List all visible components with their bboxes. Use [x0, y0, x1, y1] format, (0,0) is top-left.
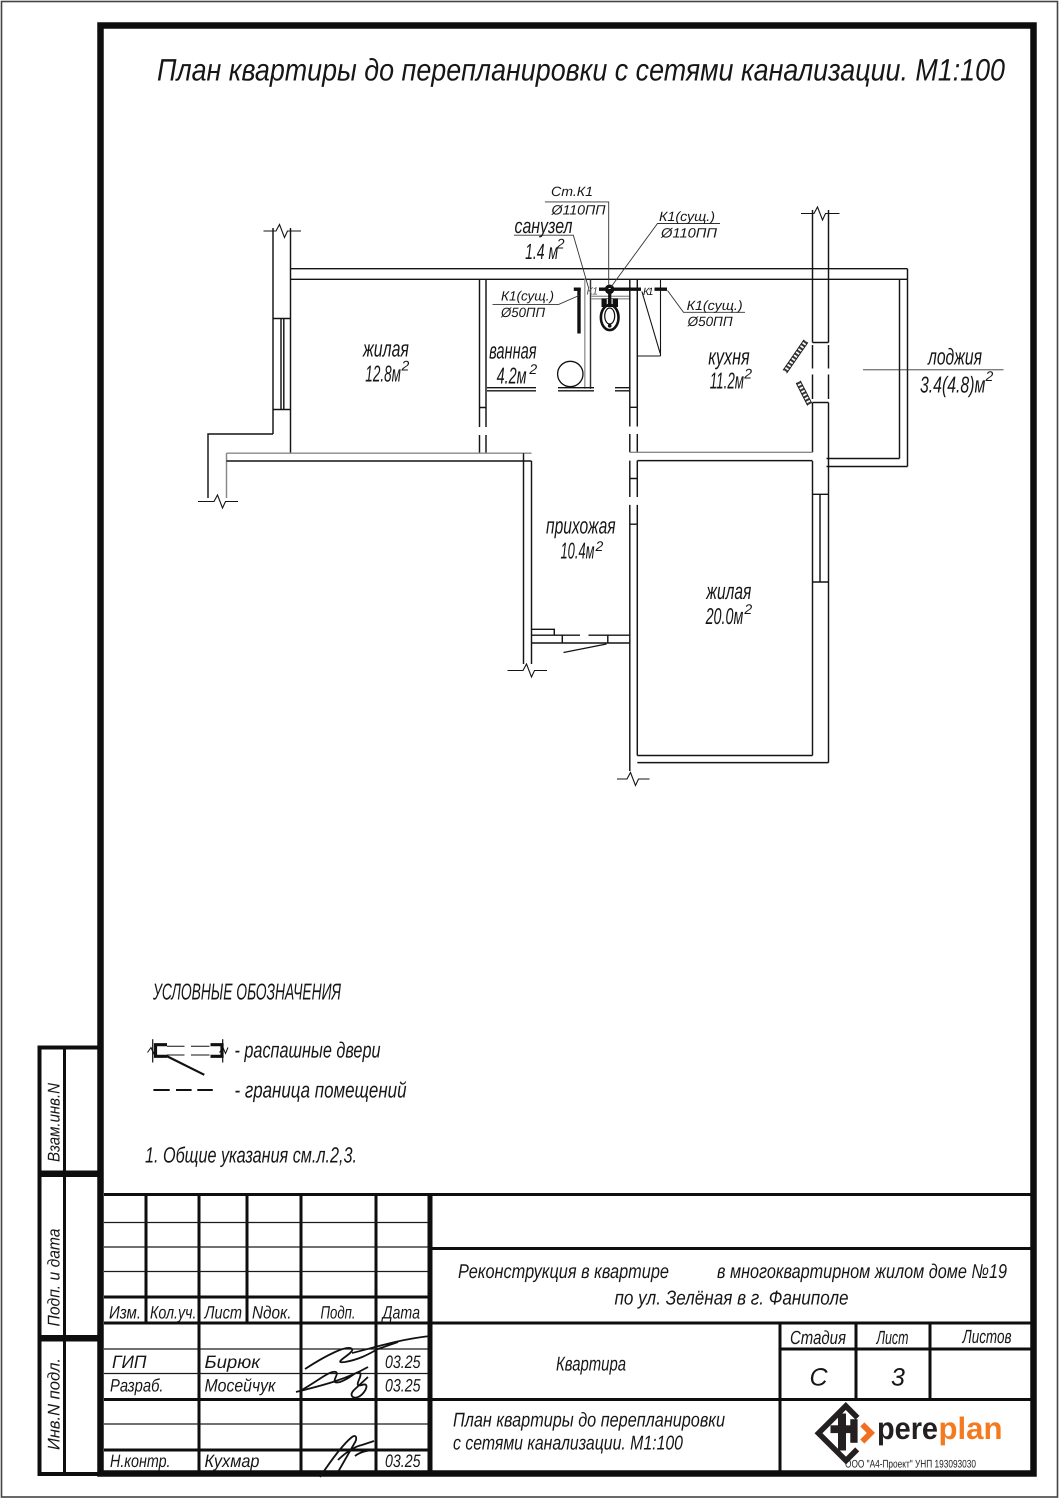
svg-text:Разраб.: Разраб.: [110, 1376, 164, 1396]
svg-text:План квартиры до перепланировк: План квартиры до перепланировки с сетями…: [157, 53, 1005, 88]
svg-text:Квартира: Квартира: [556, 1354, 626, 1376]
svg-text:Подп. и дата: Подп. и дата: [45, 1229, 64, 1327]
svg-text:К1: К1: [643, 286, 654, 298]
svg-text:План квартиры до перепланировк: План квартиры до перепланировки: [453, 1410, 725, 1432]
svg-text:с сетями канализации. М1:100: с сетями канализации. М1:100: [453, 1433, 683, 1455]
svg-text:Nдок.: Nдок.: [252, 1303, 292, 1323]
svg-text:10.4м: 10.4м: [561, 537, 595, 563]
svg-text:К1(сущ.): К1(сущ.): [687, 298, 743, 313]
svg-text:С: С: [810, 1364, 829, 1392]
svg-text:2: 2: [528, 361, 537, 377]
svg-text:plan: plan: [939, 1411, 1003, 1446]
svg-text:по ул. Зелёная в г. Фаниполе: по ул. Зелёная в г. Фаниполе: [615, 1288, 849, 1310]
svg-text:03.25: 03.25: [385, 1451, 421, 1471]
svg-text:4.2м: 4.2м: [497, 362, 527, 388]
svg-text:в многоквартирном жилом доме №: в многоквартирном жилом доме №19: [717, 1261, 1007, 1283]
svg-text:- распашные двери: - распашные двери: [235, 1038, 381, 1063]
svg-text:20.0м: 20.0м: [705, 603, 743, 629]
svg-text:Реконструкция в квартире: Реконструкция в квартире: [458, 1261, 669, 1283]
svg-text:Кухмар: Кухмар: [205, 1451, 260, 1471]
svg-text:Взам.инв.N: Взам.инв.N: [45, 1082, 64, 1162]
svg-text:2: 2: [556, 235, 565, 251]
svg-text:Подп.: Подп.: [321, 1303, 356, 1323]
svg-text:2: 2: [595, 538, 604, 554]
svg-text:Ø50ПП: Ø50ПП: [687, 314, 733, 329]
svg-text:2: 2: [743, 366, 752, 382]
svg-text:ООО "А4-Проект" УНП 193093030: ООО "А4-Проект" УНП 193093030: [845, 1459, 976, 1471]
svg-text:Мосейчук: Мосейчук: [205, 1376, 277, 1396]
svg-text:- граница помещений: - граница помещений: [235, 1078, 407, 1103]
svg-text:ГИП: ГИП: [112, 1352, 147, 1372]
svg-text:Дата: Дата: [381, 1303, 420, 1323]
svg-text:Ø50ПП: Ø50ПП: [500, 305, 545, 320]
svg-text:2: 2: [985, 368, 994, 384]
svg-text:Н.контр.: Н.контр.: [110, 1451, 171, 1471]
svg-text:К1(сущ.): К1(сущ.): [501, 288, 554, 303]
svg-text:Лист: Лист: [204, 1303, 242, 1323]
svg-text:Бирюк: Бирюк: [205, 1352, 262, 1372]
svg-text:1.4 м: 1.4 м: [525, 239, 558, 264]
svg-text:3.4(4.8)м: 3.4(4.8)м: [920, 372, 985, 398]
svg-text:pere: pere: [877, 1411, 938, 1446]
svg-text:03.25: 03.25: [385, 1376, 421, 1396]
svg-text:Кол.уч.: Кол.уч.: [150, 1303, 197, 1323]
svg-text:03.25: 03.25: [385, 1352, 421, 1372]
svg-text:прихожая: прихожая: [546, 513, 616, 539]
svg-text:К1(сущ.): К1(сущ.): [659, 209, 715, 224]
svg-text:Лист: Лист: [875, 1328, 908, 1349]
svg-text:лоджия: лоджия: [927, 343, 982, 369]
svg-text:12.8м: 12.8м: [365, 361, 401, 387]
svg-text:Инв.N подл.: Инв.N подл.: [45, 1358, 64, 1450]
svg-text:Изм.: Изм.: [109, 1303, 141, 1323]
svg-text:Ø110ПП: Ø110ПП: [660, 226, 717, 241]
svg-text:Ст.К1: Ст.К1: [551, 184, 593, 199]
svg-text:Стадия: Стадия: [790, 1328, 846, 1349]
svg-text:2: 2: [743, 601, 752, 617]
svg-text:1. Общие указания см.л.2,3.: 1. Общие указания см.л.2,3.: [145, 1143, 357, 1168]
svg-text:Листов: Листов: [961, 1327, 1011, 1348]
svg-text:3: 3: [891, 1364, 905, 1392]
svg-text:2: 2: [401, 358, 410, 374]
svg-text:УСЛОВНЫЕ ОБОЗНАЧЕНИЯ: УСЛОВНЫЕ ОБОЗНАЧЕНИЯ: [152, 979, 341, 1005]
svg-text:ванная: ванная: [489, 337, 536, 363]
svg-text:К1: К1: [587, 286, 599, 298]
svg-text:11.2м: 11.2м: [710, 368, 744, 394]
